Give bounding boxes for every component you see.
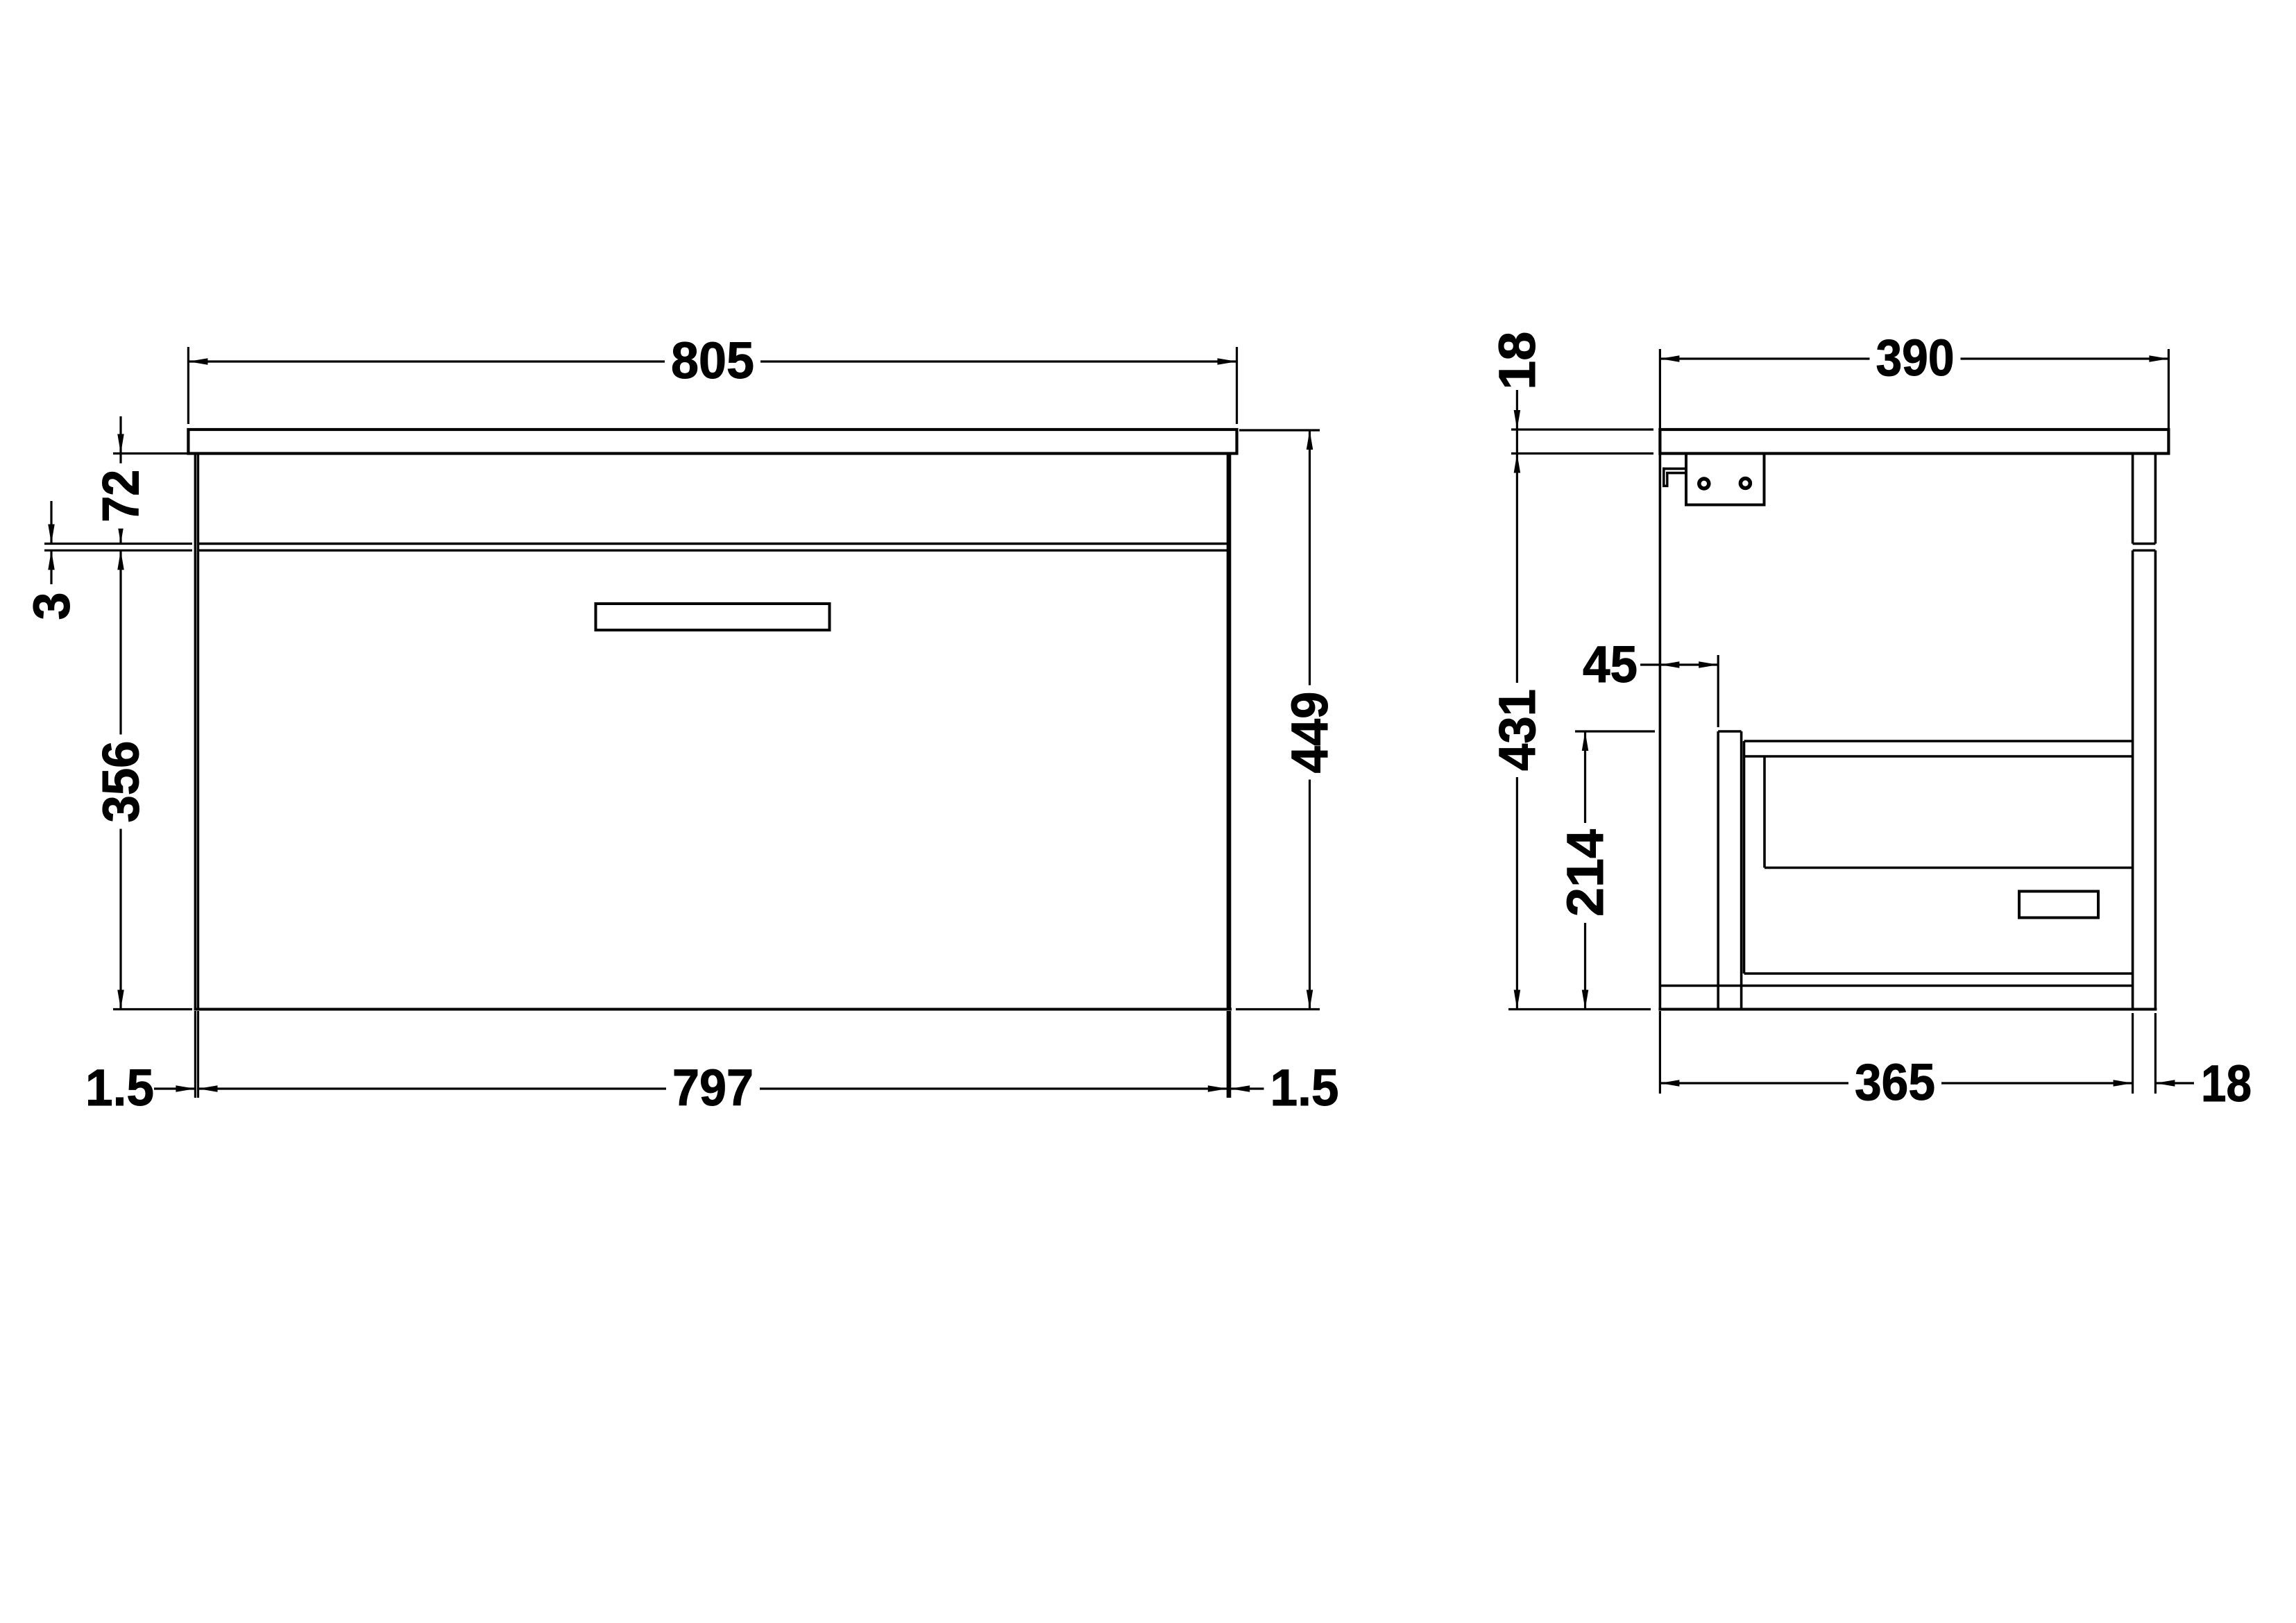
svg-text:431: 431: [1488, 689, 1546, 771]
svg-text:45: 45: [1583, 636, 1638, 693]
svg-text:1.5: 1.5: [85, 1059, 154, 1116]
svg-text:797: 797: [672, 1059, 754, 1116]
svg-text:18: 18: [2201, 1055, 2252, 1112]
svg-text:449: 449: [1281, 692, 1338, 774]
svg-text:1.5: 1.5: [1270, 1059, 1339, 1116]
svg-text:18: 18: [1488, 332, 1546, 390]
svg-text:805: 805: [671, 332, 754, 389]
svg-text:214: 214: [1556, 829, 1614, 917]
svg-text:356: 356: [92, 741, 150, 823]
svg-text:365: 365: [1855, 1053, 1935, 1111]
svg-text:390: 390: [1876, 329, 1955, 386]
svg-text:3: 3: [23, 593, 80, 620]
svg-text:72: 72: [92, 470, 150, 522]
